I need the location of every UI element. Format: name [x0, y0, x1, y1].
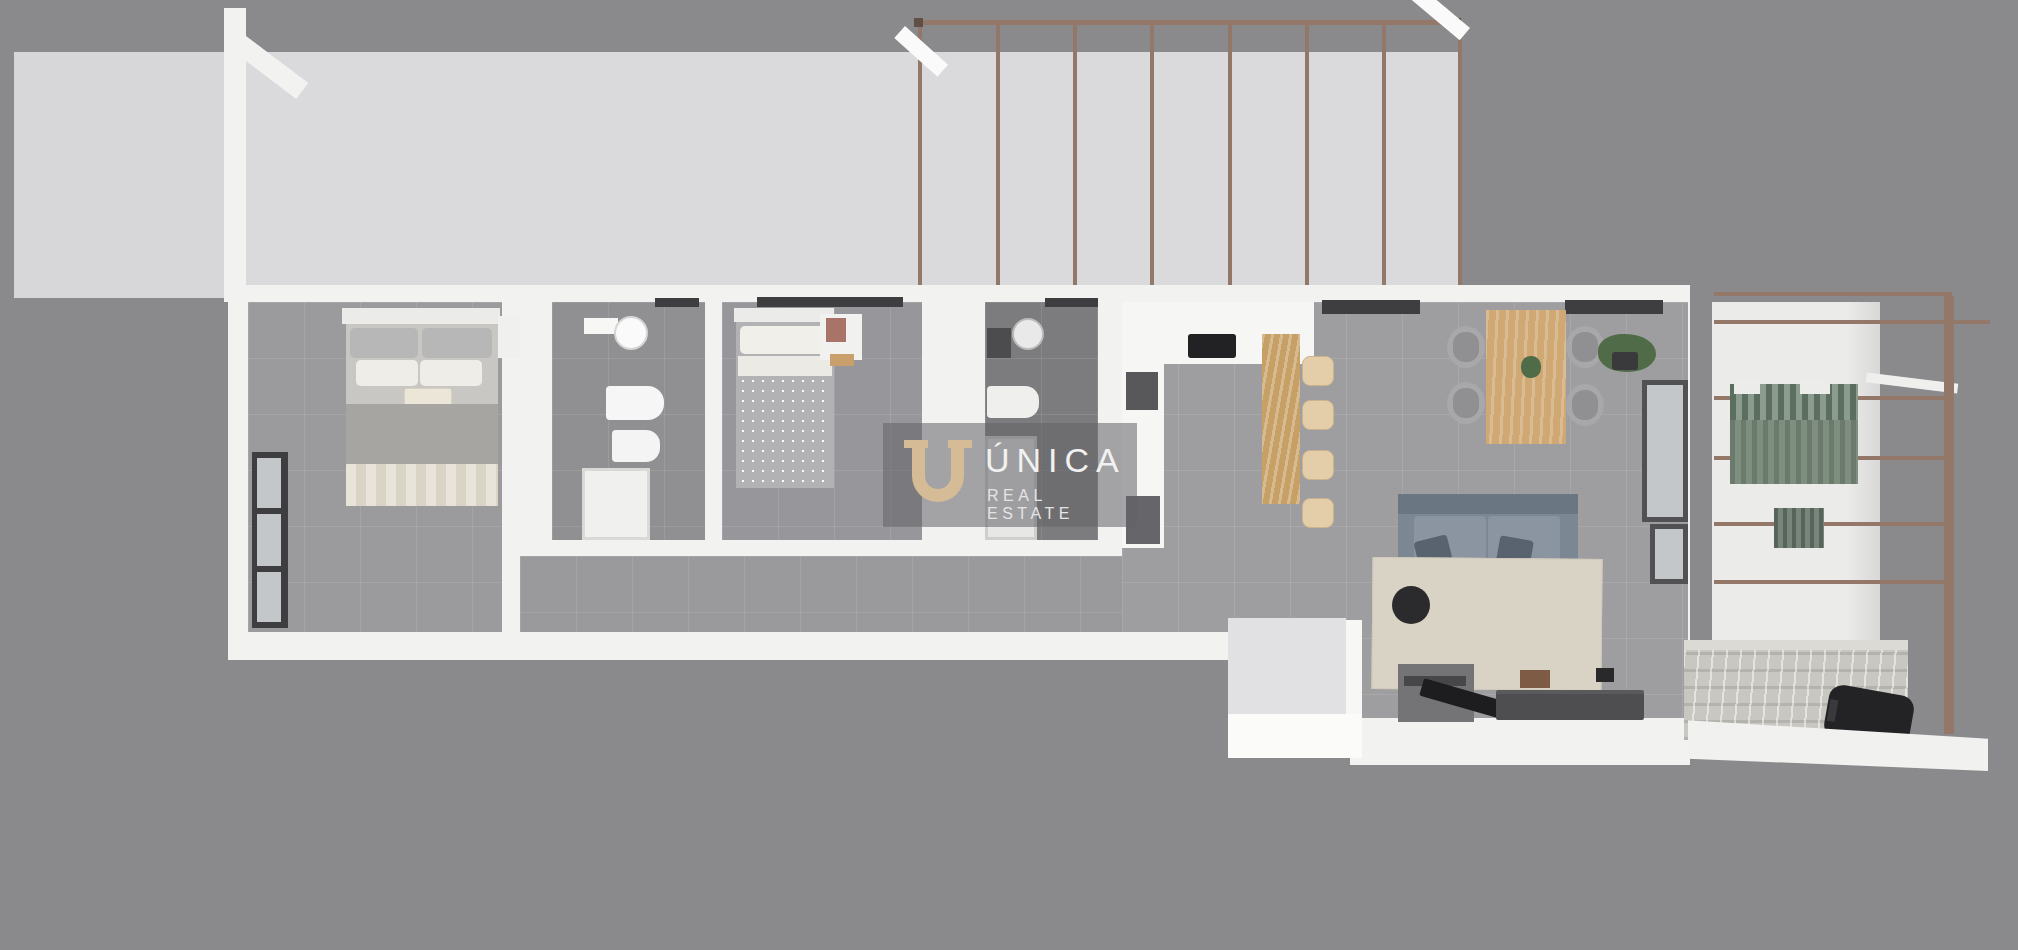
washbasin: [614, 316, 648, 350]
brand-logo-cap: [948, 440, 972, 448]
pergola-corner-cap: [914, 18, 923, 27]
pillow: [422, 328, 492, 358]
decor-item: [1596, 668, 1614, 682]
pergola-post: [996, 24, 1000, 290]
desk-decor: [826, 318, 846, 342]
decor-box: [1520, 670, 1550, 688]
pillow: [740, 326, 830, 354]
roof-terrace-left-slab: [14, 52, 224, 298]
table-plant: [1521, 356, 1541, 378]
window-pane: [257, 572, 281, 622]
pergola-post: [1458, 24, 1462, 290]
bed-headboard: [734, 308, 834, 322]
brand-tagline: REAL ESTATE: [987, 487, 1137, 523]
vanity-counter: [987, 328, 1011, 358]
toilet: [606, 386, 664, 420]
bar-stool: [1302, 400, 1334, 430]
outdoor-sofa: [1730, 384, 1858, 484]
window-pane: [257, 458, 281, 508]
grill-handle: [1827, 699, 1839, 722]
dining-chair: [1447, 382, 1485, 424]
sofa-back: [1398, 494, 1578, 514]
window-pane: [257, 514, 281, 566]
pergola-post: [918, 24, 922, 290]
outdoor-sofa-seat: [1730, 420, 1858, 484]
floorplan-scene: ÚNICA REAL ESTATE: [0, 0, 2018, 950]
brand-logo-u-icon: [912, 444, 964, 502]
desk: [820, 314, 862, 360]
bidet: [612, 430, 660, 462]
railing-rail: [1714, 522, 1952, 526]
bed-blanket: [346, 404, 498, 464]
chair-seat: [1572, 332, 1598, 362]
pergola-post: [1073, 24, 1077, 290]
watermark: ÚNICA REAL ESTATE: [883, 423, 1137, 527]
brand-logo-cap: [904, 440, 928, 448]
window-strip: [757, 297, 903, 307]
chair-seat: [1453, 332, 1479, 362]
washbasin: [1012, 318, 1044, 350]
glass-door: [1642, 380, 1688, 522]
roof-terrace-slab: [244, 52, 1460, 292]
pergola-post: [1150, 24, 1154, 290]
bar-stool: [1302, 450, 1334, 480]
dining-chair: [1566, 384, 1604, 426]
double-bed: [346, 324, 498, 506]
glass-door: [1650, 524, 1688, 584]
window-strip: [1045, 298, 1098, 307]
pillow: [420, 360, 482, 386]
bar-stool: [1302, 356, 1334, 386]
bar-stool: [1302, 498, 1334, 528]
nightstand: [498, 316, 520, 358]
window-frame-master: [252, 452, 288, 628]
breakfast-bar: [1262, 334, 1300, 504]
oven: [1126, 372, 1158, 410]
railing-rail: [1714, 292, 1952, 296]
pillow: [350, 328, 418, 358]
railing-rail: [1714, 580, 1952, 584]
coffee-table-pouf: [1392, 586, 1430, 624]
toilet: [987, 386, 1039, 418]
chair-seat: [1453, 388, 1479, 418]
outdoor-sofa-towel: [1734, 380, 1760, 394]
desk-chair: [830, 354, 854, 366]
bed-foot-throw: [346, 464, 498, 506]
dining-chair: [1447, 326, 1485, 368]
outdoor-sofa-towel: [1800, 380, 1830, 394]
pergola-post: [1228, 24, 1232, 290]
pergola-post: [1382, 24, 1386, 290]
window-strip: [1322, 300, 1420, 314]
chair-seat: [1572, 390, 1598, 420]
bed-headboard: [342, 308, 500, 324]
window-strip: [655, 298, 699, 307]
vestibule-cube-front: [1228, 714, 1362, 758]
vestibule-cube-top: [1228, 618, 1346, 716]
pillow: [356, 360, 418, 386]
vanity-counter: [584, 318, 618, 334]
floor-corridor: [520, 556, 1122, 632]
plant-pot: [1612, 352, 1638, 370]
cooktop: [1188, 334, 1236, 358]
duvet-fold: [738, 356, 832, 376]
shower-tray: [582, 468, 650, 540]
brand-name: ÚNICA: [985, 441, 1126, 480]
outdoor-side-table: [1774, 508, 1824, 548]
media-shelf: [1496, 690, 1644, 720]
pergola-post: [1305, 24, 1309, 290]
railing-post: [1944, 296, 1954, 734]
window-strip: [1565, 300, 1663, 314]
